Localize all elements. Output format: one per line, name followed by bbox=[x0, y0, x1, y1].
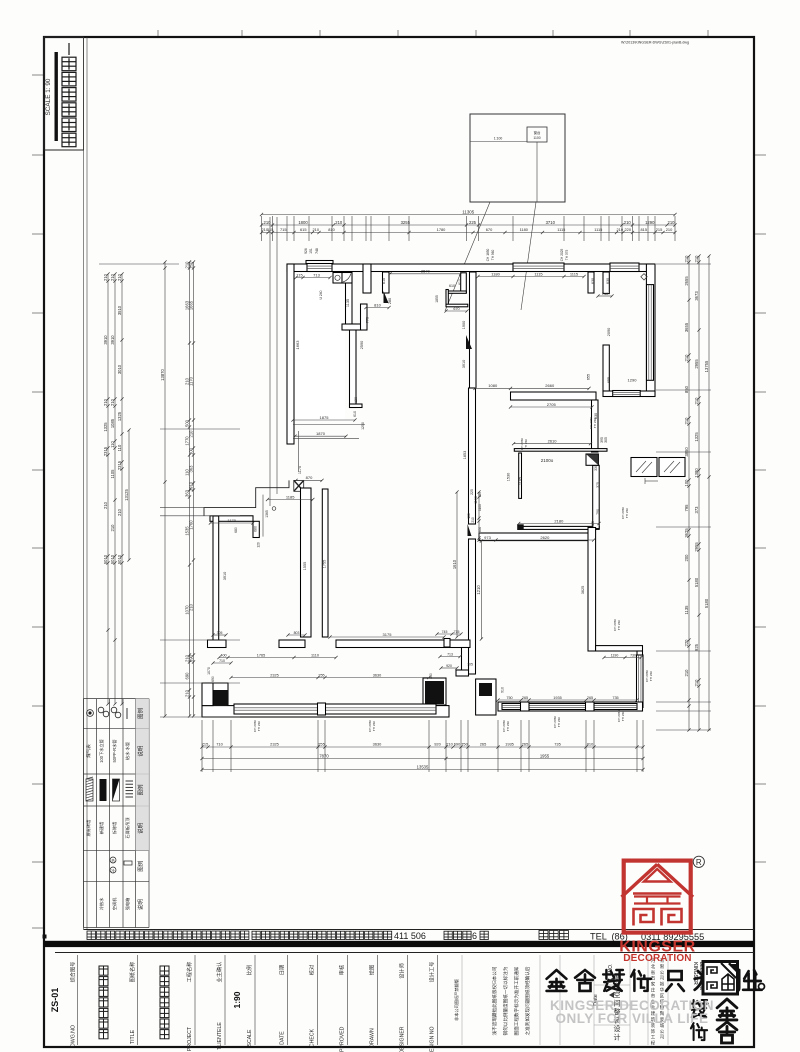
svg-text:13125: 13125 bbox=[124, 489, 129, 501]
svg-text:735: 735 bbox=[554, 742, 561, 747]
svg-text:1935: 1935 bbox=[553, 696, 561, 700]
svg-text:1180: 1180 bbox=[491, 271, 500, 276]
svg-text:1935: 1935 bbox=[505, 742, 514, 747]
svg-text:210: 210 bbox=[666, 227, 673, 232]
svg-text:7870: 7870 bbox=[319, 753, 329, 758]
svg-text:1070: 1070 bbox=[207, 667, 211, 675]
svg-text:710: 710 bbox=[602, 292, 608, 296]
svg-text:TH 260: TH 260 bbox=[625, 508, 629, 518]
svg-text:2955: 2955 bbox=[694, 359, 699, 369]
svg-text:215: 215 bbox=[656, 227, 663, 232]
svg-text:750: 750 bbox=[506, 696, 512, 700]
svg-text:795: 795 bbox=[684, 504, 689, 512]
svg-text:210: 210 bbox=[103, 398, 108, 406]
svg-text:210: 210 bbox=[684, 255, 689, 263]
svg-text:790: 790 bbox=[596, 509, 600, 515]
svg-text:3625: 3625 bbox=[684, 528, 689, 538]
svg-text:TH 560: TH 560 bbox=[491, 250, 495, 261]
svg-text:非本公司图纸严禁翻版: 非本公司图纸严禁翻版 bbox=[453, 978, 460, 1021]
svg-text:TH 260: TH 260 bbox=[621, 711, 625, 721]
svg-text:说明: 说明 bbox=[137, 899, 145, 911]
svg-text:2325: 2325 bbox=[270, 742, 279, 747]
svg-text:710: 710 bbox=[216, 742, 223, 747]
svg-text:1170: 1170 bbox=[298, 466, 302, 474]
svg-text:1853: 1853 bbox=[463, 451, 467, 459]
svg-text:3655: 3655 bbox=[684, 322, 689, 332]
svg-text:1325: 1325 bbox=[117, 411, 122, 421]
svg-text:265: 265 bbox=[587, 696, 593, 700]
svg-text:615: 615 bbox=[300, 227, 307, 232]
svg-text:255: 255 bbox=[318, 742, 325, 747]
svg-text:100: 100 bbox=[188, 447, 193, 455]
svg-text:TH 260: TH 260 bbox=[506, 721, 510, 731]
svg-text:TH 260: TH 260 bbox=[593, 418, 597, 428]
svg-text:3673: 3673 bbox=[694, 291, 699, 301]
svg-text:强电箱: 强电箱 bbox=[124, 898, 131, 911]
svg-text:810: 810 bbox=[374, 302, 381, 307]
svg-text:690: 690 bbox=[184, 672, 189, 680]
svg-text:210: 210 bbox=[117, 508, 122, 516]
svg-text:1530: 1530 bbox=[506, 473, 510, 481]
svg-text:TH 375: TH 375 bbox=[565, 250, 569, 261]
svg-text:200: 200 bbox=[684, 554, 689, 562]
svg-text:210: 210 bbox=[110, 273, 115, 281]
svg-text:热: 热 bbox=[111, 858, 115, 863]
svg-text:210: 210 bbox=[110, 524, 115, 532]
svg-text:265: 265 bbox=[522, 696, 528, 700]
svg-text:窗台: 窗台 bbox=[534, 130, 541, 135]
svg-text:870: 870 bbox=[306, 475, 313, 480]
svg-text:DESIGN NO: DESIGN NO bbox=[430, 1026, 436, 1052]
svg-text:305: 305 bbox=[604, 437, 608, 443]
svg-text:工程名称: 工程名称 bbox=[185, 962, 193, 983]
svg-text:610: 610 bbox=[458, 279, 462, 285]
svg-text:拆除墙: 拆除墙 bbox=[111, 822, 118, 835]
svg-text:3510: 3510 bbox=[117, 305, 122, 315]
svg-text:设计工号: 设计工号 bbox=[428, 962, 436, 983]
svg-text:363: 363 bbox=[188, 465, 193, 473]
svg-text:210: 210 bbox=[668, 220, 676, 225]
svg-text:13755: 13755 bbox=[704, 360, 709, 372]
svg-text:750: 750 bbox=[461, 742, 468, 747]
svg-text:TITLE: TITLE bbox=[130, 1029, 136, 1044]
svg-text:2660: 2660 bbox=[545, 383, 555, 388]
svg-text:713: 713 bbox=[313, 272, 320, 277]
svg-text:3630: 3630 bbox=[373, 742, 382, 747]
svg-text:家: 家 bbox=[651, 981, 656, 987]
svg-text:973: 973 bbox=[484, 535, 491, 540]
svg-text:1765: 1765 bbox=[257, 653, 265, 657]
svg-text:2100o: 2100o bbox=[541, 458, 554, 463]
svg-text:1380: 1380 bbox=[694, 468, 699, 478]
svg-text:司: 司 bbox=[660, 1035, 664, 1040]
svg-text:1325: 1325 bbox=[694, 432, 699, 442]
svg-text:2655: 2655 bbox=[684, 276, 689, 286]
svg-text:DATE: DATE bbox=[280, 1031, 286, 1045]
svg-text:5180: 5180 bbox=[704, 598, 709, 608]
svg-text:1:90: 1:90 bbox=[232, 991, 242, 1008]
svg-text:210: 210 bbox=[103, 273, 108, 281]
svg-text:210: 210 bbox=[684, 354, 689, 362]
svg-text:TH 260: TH 260 bbox=[372, 721, 376, 731]
svg-text:1100: 1100 bbox=[478, 504, 482, 511]
svg-text:850: 850 bbox=[478, 527, 482, 533]
svg-text:1955: 1955 bbox=[540, 753, 550, 758]
svg-text:DECORATION: DECORATION bbox=[623, 953, 691, 964]
svg-text:810: 810 bbox=[587, 742, 594, 747]
svg-text:1760: 1760 bbox=[188, 520, 193, 530]
svg-text:1290: 1290 bbox=[628, 378, 638, 383]
svg-text:690: 690 bbox=[454, 742, 461, 747]
svg-text:绘图: 绘图 bbox=[368, 965, 376, 975]
svg-text:浅不遮瑕藏拙此图纸版权归本公司: 浅不遮瑕藏拙此图纸版权归本公司 bbox=[491, 966, 498, 1035]
svg-text:TH 260: TH 260 bbox=[617, 620, 621, 630]
svg-text:校对: 校对 bbox=[308, 965, 316, 975]
svg-text:1555: 1555 bbox=[303, 562, 307, 570]
svg-text:210: 210 bbox=[684, 669, 689, 677]
svg-text:1080: 1080 bbox=[488, 383, 498, 388]
svg-text:综合图号: 综合图号 bbox=[69, 962, 77, 983]
svg-text:1663: 1663 bbox=[295, 340, 300, 350]
svg-text:1855: 1855 bbox=[435, 295, 439, 303]
svg-text:1250: 1250 bbox=[361, 422, 365, 430]
svg-text:120: 120 bbox=[257, 542, 261, 548]
svg-text:375: 375 bbox=[596, 482, 600, 488]
svg-text:1115: 1115 bbox=[570, 271, 579, 276]
svg-text:3850: 3850 bbox=[684, 447, 689, 457]
svg-text:ZS-01: ZS-01 bbox=[50, 988, 60, 1013]
svg-text:11305: 11305 bbox=[462, 209, 474, 214]
svg-text:3630: 3630 bbox=[373, 673, 381, 677]
svg-text:690: 690 bbox=[188, 654, 193, 662]
svg-text:ONLY FOR VILLA LIFE: ONLY FOR VILLA LIFE bbox=[555, 1011, 708, 1026]
svg-text:815: 815 bbox=[641, 227, 648, 232]
svg-text:1870: 1870 bbox=[316, 431, 326, 436]
svg-text:U 240: U 240 bbox=[319, 290, 323, 299]
svg-text:冷热水: 冷热水 bbox=[98, 897, 105, 910]
svg-text:100: 100 bbox=[684, 479, 689, 487]
svg-text:630: 630 bbox=[606, 278, 610, 284]
svg-text:图例: 图例 bbox=[137, 707, 145, 719]
svg-text:220: 220 bbox=[625, 227, 632, 232]
svg-text:655: 655 bbox=[607, 377, 611, 383]
svg-text:1085: 1085 bbox=[110, 418, 115, 428]
svg-text:2090: 2090 bbox=[607, 328, 611, 336]
svg-text:1325: 1325 bbox=[103, 422, 108, 432]
svg-text:1185: 1185 bbox=[286, 494, 295, 499]
svg-text:210: 210 bbox=[694, 397, 699, 405]
svg-text:R: R bbox=[696, 858, 702, 867]
svg-text:690: 690 bbox=[211, 676, 215, 682]
svg-text:210: 210 bbox=[110, 398, 115, 406]
svg-text:926: 926 bbox=[304, 248, 308, 254]
svg-text:1100: 1100 bbox=[474, 496, 478, 504]
svg-text:210: 210 bbox=[694, 255, 699, 263]
svg-text:公: 公 bbox=[660, 1029, 665, 1034]
svg-text:1135: 1135 bbox=[684, 605, 689, 615]
svg-text:司: 司 bbox=[660, 976, 664, 981]
svg-text:3625: 3625 bbox=[581, 586, 585, 594]
svg-text:计: 计 bbox=[614, 1033, 621, 1042]
svg-text:1665: 1665 bbox=[188, 300, 193, 310]
svg-text:业主确认: 业主确认 bbox=[215, 961, 223, 983]
svg-text:钢勿以比例量度图纸一切以标注为: 钢勿以比例量度图纸一切以标注为 bbox=[502, 966, 509, 1035]
svg-text:745: 745 bbox=[442, 630, 448, 634]
svg-text:给水·水管: 给水·水管 bbox=[124, 742, 131, 760]
svg-text:100下水立管: 100下水立管 bbox=[98, 739, 105, 763]
svg-text:715: 715 bbox=[280, 227, 287, 232]
svg-text:1180: 1180 bbox=[520, 227, 529, 232]
svg-text:工: 工 bbox=[651, 1035, 656, 1040]
svg-text:图纸名称: 图纸名称 bbox=[128, 962, 136, 983]
svg-text:210: 210 bbox=[313, 227, 320, 232]
svg-text:新建墙: 新建墙 bbox=[98, 822, 105, 835]
svg-text:空调机: 空调机 bbox=[111, 897, 118, 910]
svg-text:TH 260: TH 260 bbox=[649, 671, 653, 681]
svg-text:715: 715 bbox=[202, 742, 209, 747]
svg-text:KINGSER: KINGSER bbox=[692, 962, 698, 985]
svg-text:1100: 1100 bbox=[533, 136, 540, 140]
svg-text:1190: 1190 bbox=[611, 653, 619, 657]
svg-text:110: 110 bbox=[110, 440, 115, 447]
svg-text:DESIGNER: DESIGNER bbox=[400, 1026, 406, 1052]
svg-text:SCALE 1: 90: SCALE 1: 90 bbox=[45, 78, 52, 115]
svg-text:5010: 5010 bbox=[117, 554, 122, 564]
svg-text:1755: 1755 bbox=[323, 560, 327, 568]
svg-text:210: 210 bbox=[335, 220, 343, 225]
svg-text:说明: 说明 bbox=[137, 822, 145, 834]
svg-text:1110: 1110 bbox=[311, 653, 319, 657]
svg-text:日期: 日期 bbox=[279, 965, 286, 975]
svg-text:CHECK: CHECK bbox=[310, 1028, 316, 1047]
svg-text:210: 210 bbox=[188, 430, 193, 438]
svg-text:审核: 审核 bbox=[338, 965, 346, 975]
svg-text:13535: 13535 bbox=[417, 764, 429, 769]
svg-text:3010: 3010 bbox=[117, 364, 122, 374]
svg-text:210: 210 bbox=[471, 517, 475, 523]
svg-text:3910: 3910 bbox=[188, 481, 193, 491]
svg-text:330: 330 bbox=[594, 465, 598, 471]
svg-text:715: 715 bbox=[454, 630, 460, 634]
svg-text:50PP-R水管: 50PP-R水管 bbox=[111, 739, 118, 762]
svg-text:803: 803 bbox=[294, 631, 300, 635]
svg-text:CH 1850: CH 1850 bbox=[486, 248, 490, 261]
svg-text:735: 735 bbox=[612, 696, 618, 700]
svg-text:1610: 1610 bbox=[452, 559, 457, 569]
svg-text:冷: 冷 bbox=[111, 868, 115, 873]
svg-text:3910: 3910 bbox=[462, 360, 466, 368]
svg-text:610: 610 bbox=[449, 284, 455, 288]
svg-text:1210: 1210 bbox=[476, 585, 481, 595]
svg-text:210: 210 bbox=[188, 603, 193, 611]
svg-text:748: 748 bbox=[315, 248, 319, 254]
svg-text:1170: 1170 bbox=[188, 376, 193, 386]
svg-text:210: 210 bbox=[694, 679, 699, 687]
svg-text:2590: 2590 bbox=[360, 341, 364, 349]
svg-text:670: 670 bbox=[453, 307, 459, 311]
svg-text:2315: 2315 bbox=[103, 446, 108, 456]
svg-text:1875: 1875 bbox=[320, 415, 330, 420]
svg-text:说明: 说明 bbox=[137, 745, 145, 757]
svg-text:210: 210 bbox=[184, 689, 189, 697]
svg-text:2955: 2955 bbox=[694, 542, 699, 552]
svg-text:920: 920 bbox=[446, 664, 452, 668]
svg-text:680: 680 bbox=[234, 527, 238, 533]
svg-text:1780: 1780 bbox=[437, 227, 446, 232]
svg-text:3175: 3175 bbox=[383, 632, 393, 637]
svg-text:225: 225 bbox=[470, 489, 474, 495]
svg-text:原有砖墙: 原有砖墙 bbox=[85, 820, 92, 837]
svg-text:500: 500 bbox=[184, 419, 189, 427]
svg-text:920: 920 bbox=[434, 742, 441, 747]
svg-text:210: 210 bbox=[103, 501, 108, 509]
svg-text:775: 775 bbox=[366, 317, 370, 323]
svg-text:APPROVED: APPROVED bbox=[340, 1026, 346, 1052]
svg-text:3910: 3910 bbox=[110, 335, 115, 345]
svg-text:1105: 1105 bbox=[110, 469, 115, 479]
svg-text:1115: 1115 bbox=[534, 271, 543, 276]
svg-text:图例: 图例 bbox=[137, 784, 145, 796]
svg-text:120: 120 bbox=[354, 397, 358, 403]
svg-text:265: 265 bbox=[480, 742, 487, 747]
svg-text:5010: 5010 bbox=[110, 554, 115, 564]
svg-text:151: 151 bbox=[309, 248, 313, 254]
svg-text:1:100: 1:100 bbox=[494, 137, 503, 141]
svg-text:2620: 2620 bbox=[540, 535, 550, 540]
svg-text:1290: 1290 bbox=[645, 220, 655, 225]
svg-text:1135: 1135 bbox=[346, 299, 350, 307]
svg-text:SCALE: SCALE bbox=[247, 1029, 253, 1047]
svg-text:公: 公 bbox=[660, 970, 665, 975]
svg-text:TLIENTELE: TLIENTELE bbox=[217, 1022, 223, 1050]
svg-text:610: 610 bbox=[353, 411, 357, 417]
svg-text:925: 925 bbox=[694, 643, 699, 651]
svg-text:210: 210 bbox=[624, 220, 632, 225]
svg-text:680: 680 bbox=[253, 526, 257, 532]
svg-text:CH 2025: CH 2025 bbox=[560, 248, 564, 261]
svg-text:850: 850 bbox=[684, 385, 689, 393]
svg-text:图面工程数字标示为准开工前通知: 图面工程数字标示为准开工前通知 bbox=[513, 966, 520, 1035]
svg-text:2315: 2315 bbox=[117, 460, 122, 470]
svg-text:925: 925 bbox=[591, 521, 595, 527]
svg-text:910: 910 bbox=[501, 687, 505, 693]
svg-text:373: 373 bbox=[694, 506, 699, 514]
svg-text:5010: 5010 bbox=[103, 554, 108, 564]
svg-text:TH 260: TH 260 bbox=[257, 721, 261, 731]
svg-text:1365: 1365 bbox=[265, 510, 269, 518]
svg-text:705: 705 bbox=[467, 663, 473, 667]
svg-text:2570: 2570 bbox=[421, 269, 431, 274]
svg-text:305: 305 bbox=[217, 631, 223, 635]
svg-text:1105: 1105 bbox=[519, 477, 523, 485]
svg-text:225: 225 bbox=[469, 220, 477, 225]
svg-text:730: 730 bbox=[630, 653, 636, 657]
svg-text:图例: 图例 bbox=[137, 860, 145, 872]
svg-text:210: 210 bbox=[684, 417, 689, 425]
svg-text:3710: 3710 bbox=[546, 220, 556, 225]
svg-text:655: 655 bbox=[586, 374, 590, 380]
svg-text:2325: 2325 bbox=[270, 673, 278, 677]
svg-text:670: 670 bbox=[486, 227, 493, 232]
svg-text:TH 260: TH 260 bbox=[524, 439, 528, 449]
svg-text:13870: 13870 bbox=[160, 369, 165, 381]
svg-text:之准则如发现问题图纸须经确认后: 之准则如发现问题图纸须经确认后 bbox=[524, 966, 531, 1035]
svg-text:710: 710 bbox=[219, 659, 225, 663]
svg-text:115: 115 bbox=[296, 272, 303, 277]
svg-text:2705: 2705 bbox=[547, 402, 557, 407]
svg-text:830: 830 bbox=[429, 673, 433, 679]
svg-text:TH 260: TH 260 bbox=[557, 717, 561, 727]
svg-text:210: 210 bbox=[617, 227, 624, 232]
svg-text:2610: 2610 bbox=[548, 439, 558, 444]
svg-text:225: 225 bbox=[478, 492, 482, 498]
svg-text:3910: 3910 bbox=[103, 335, 108, 345]
svg-text:1170: 1170 bbox=[227, 518, 236, 523]
svg-text:220: 220 bbox=[684, 639, 689, 647]
svg-text:411 506: 411 506 bbox=[394, 931, 426, 941]
svg-text:3910: 3910 bbox=[223, 572, 227, 580]
svg-text:PROJECT: PROJECT bbox=[187, 1026, 193, 1051]
svg-text:程: 程 bbox=[651, 1040, 656, 1047]
svg-text:250: 250 bbox=[188, 261, 193, 269]
svg-text:石膏板吊顶: 石膏板吊顶 bbox=[124, 817, 131, 839]
svg-text:DRAWN: DRAWN bbox=[370, 1028, 376, 1048]
svg-text:400: 400 bbox=[220, 653, 226, 657]
svg-text:610: 610 bbox=[382, 278, 386, 284]
svg-text:210: 210 bbox=[446, 742, 453, 747]
svg-text:265: 265 bbox=[522, 742, 529, 747]
svg-text:比例: 比例 bbox=[245, 965, 253, 975]
svg-text:5180: 5180 bbox=[694, 577, 699, 587]
svg-text:2180: 2180 bbox=[554, 518, 564, 523]
svg-text:煤气表: 煤气表 bbox=[85, 744, 92, 758]
svg-text:DWG.NO: DWG.NO bbox=[71, 1025, 77, 1047]
svg-text:1900: 1900 bbox=[462, 321, 466, 329]
svg-text:6: 6 bbox=[472, 931, 477, 941]
svg-text:630: 630 bbox=[591, 278, 595, 284]
svg-text:255: 255 bbox=[318, 673, 324, 677]
svg-text:1800: 1800 bbox=[298, 220, 308, 225]
svg-text:W:\2013\KINGSER-DWG\ZS01-planB: W:\2013\KINGSER-DWG\ZS01-planB.dwg bbox=[621, 41, 689, 45]
svg-text:210: 210 bbox=[117, 273, 122, 281]
svg-text:设计师: 设计师 bbox=[398, 963, 406, 979]
svg-text:110: 110 bbox=[117, 444, 122, 451]
svg-text:280: 280 bbox=[388, 298, 392, 304]
svg-text:713: 713 bbox=[447, 652, 453, 656]
